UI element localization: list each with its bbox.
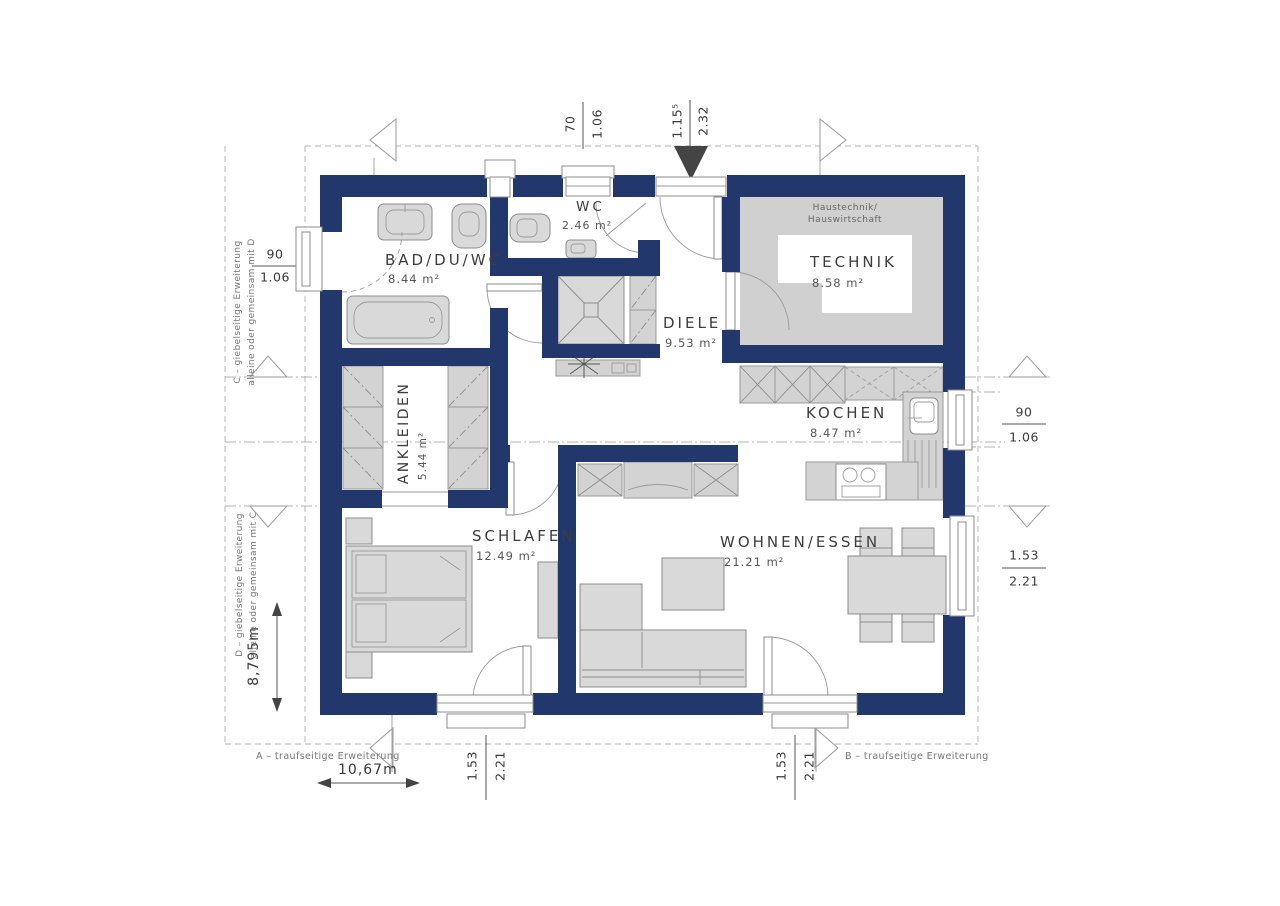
dim-wohnen-door-a: 1.53 <box>774 751 789 781</box>
extension-label-c-2: alleine oder gemeinsam mit D <box>247 238 257 385</box>
triangle-top-right <box>820 119 846 161</box>
sideboard <box>578 462 738 498</box>
room-area-wc: 2.46 m² <box>562 219 612 232</box>
bathtub <box>347 296 449 344</box>
triangle-top-left <box>370 119 396 161</box>
dim-total-width: 10,67m <box>338 762 398 778</box>
room-area-kochen: 8.47 m² <box>810 426 862 440</box>
extension-label-b: B – traufseitige Erweiterung <box>845 751 989 762</box>
dim-left-window-b: 1.06 <box>260 270 290 285</box>
room-area-ankleiden: 5.44 m² <box>417 432 429 480</box>
dim-schlafen-door-a: 1.53 <box>465 751 480 781</box>
floorplan-canvas: BAD/DU/WC 8.44 m² WC 2.46 m² Haustechnik… <box>0 0 1280 906</box>
room-label-diele: DIELE <box>663 314 721 332</box>
washbasin <box>378 204 432 240</box>
dim-entry-b: 2.32 <box>696 106 711 136</box>
dim-kitchen-window-a: 90 <box>1016 405 1033 420</box>
window-kitchen <box>948 390 972 450</box>
entrance-threshold <box>656 177 726 196</box>
entrance-arrow <box>674 146 708 180</box>
dim-living-window-a: 1.53 <box>1009 548 1039 563</box>
window-left <box>296 227 322 291</box>
dim-wohnen-door-b: 2.21 <box>802 751 817 781</box>
sill-terrace-wohnen <box>763 695 857 728</box>
ankleiden-wardrobes <box>343 366 488 489</box>
extension-label-a: A – traufseitige Erweiterung <box>256 751 400 762</box>
room-label-technik: TECHNIK <box>810 253 897 271</box>
shower <box>558 276 624 344</box>
window-living <box>950 516 974 616</box>
room-label-wc: WC <box>576 199 605 215</box>
dim-top-window-b: 1.06 <box>590 109 605 139</box>
triangle-right-down <box>1009 506 1046 527</box>
room-area-wohnen: 21.21 m² <box>724 555 784 569</box>
triangle-b <box>815 728 838 768</box>
wc-sink <box>566 240 596 258</box>
room-label-ankleiden: ANKLEIDEN <box>396 382 412 485</box>
extension-label-c-1: C – giebelseitige Erweiterung <box>233 240 243 383</box>
toilet <box>510 214 550 242</box>
hall-wardrobe <box>630 276 656 344</box>
room-area-schlafen: 12.49 m² <box>476 549 536 563</box>
room-area-technik: 8.58 m² <box>812 276 864 290</box>
dim-schlafen-door-b: 2.21 <box>493 751 508 781</box>
window-top-1 <box>485 160 515 197</box>
kitchen-island <box>806 462 918 500</box>
coffee-table <box>662 558 724 610</box>
room-area-diele: 9.53 m² <box>665 336 717 350</box>
room-label-bad: BAD/DU/WC <box>385 251 502 269</box>
bed <box>346 518 472 678</box>
schlafen-door <box>506 462 563 515</box>
ankleiden-passage <box>382 490 448 508</box>
dim-kitchen-window-b: 1.06 <box>1009 430 1039 445</box>
schlafen-dresser <box>538 562 558 638</box>
technik-note-2: Hauswirtschaft <box>805 215 885 225</box>
dim-entry-a: 1.15⁵ <box>670 103 685 138</box>
dim-left-window-a: 90 <box>267 247 284 262</box>
room-label-wohnen: WOHNEN/ESSEN <box>720 533 880 551</box>
extension-label-d-1: D – giebelseitige Erweiterung <box>235 513 245 657</box>
second-basin <box>452 204 486 248</box>
technik-note-1: Haustechnik/ <box>805 203 885 213</box>
triangle-right-up <box>1009 356 1046 377</box>
floorplan-graphics <box>0 0 1280 906</box>
room-label-schlafen: SCHLAFEN <box>472 527 576 545</box>
window-top-2 <box>562 166 614 196</box>
terrace-door-wohnen <box>764 637 828 697</box>
extension-label-d-2: alleine oder gemeinsam mit C <box>249 512 259 659</box>
height-arrow <box>272 602 282 712</box>
sill-terrace-schlafen <box>437 695 533 728</box>
room-area-bad: 8.44 m² <box>388 272 440 286</box>
room-label-kochen: KOCHEN <box>806 404 887 422</box>
dim-living-window-b: 2.21 <box>1009 574 1039 589</box>
width-arrow <box>317 778 420 788</box>
terrace-door-schlafen <box>473 646 531 700</box>
dim-top-window-a: 70 <box>563 116 578 133</box>
front-door <box>660 197 722 259</box>
